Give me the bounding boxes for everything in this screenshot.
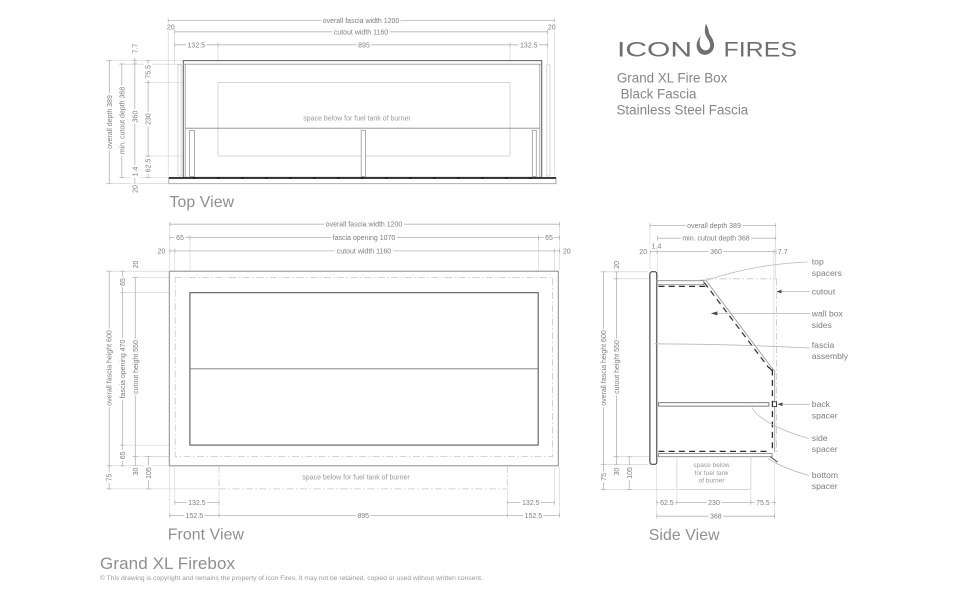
svg-text:75: 75 [107, 474, 114, 482]
svg-text:spacer: spacer [812, 410, 838, 420]
svg-text:20: 20 [639, 249, 647, 256]
svg-text:20: 20 [548, 25, 556, 32]
svg-text:space below for fuel tank of b: space below for fuel tank of burner [303, 116, 411, 123]
svg-text:overall fascia width 1200: overall fascia width 1200 [323, 18, 400, 25]
svg-text:cutout height 550: cutout height 550 [133, 340, 140, 394]
svg-text:overall depth 389: overall depth 389 [687, 223, 741, 230]
svg-text:Grand XL Firebox: Grand XL Firebox [100, 554, 236, 573]
svg-text:132.5: 132.5 [522, 500, 540, 507]
svg-text:1.4: 1.4 [132, 167, 139, 177]
svg-text:space below for fuel tank of b: space below for fuel tank of burner [302, 475, 410, 482]
svg-text:75.5: 75.5 [756, 500, 770, 507]
svg-text:360: 360 [710, 249, 722, 256]
svg-text:for fuel tank: for fuel tank [695, 470, 730, 477]
svg-text:20: 20 [158, 248, 166, 255]
svg-text:368: 368 [710, 514, 722, 521]
svg-text:Front View: Front View [168, 527, 245, 544]
svg-text:cutout: cutout [812, 287, 836, 297]
svg-text:side: side [812, 433, 828, 443]
svg-text:Grand XL Fire Box: Grand XL Fire Box [617, 71, 728, 86]
svg-text:min. cutout depth 368: min. cutout depth 368 [119, 87, 126, 154]
svg-text:20: 20 [614, 261, 621, 269]
svg-text:152.5: 152.5 [186, 513, 204, 520]
svg-text:20: 20 [167, 25, 175, 32]
svg-text:sides: sides [812, 320, 832, 330]
svg-text:1.4: 1.4 [652, 244, 662, 251]
svg-text:assembly: assembly [812, 351, 849, 361]
svg-text:fascia: fascia [812, 340, 835, 350]
svg-text:895: 895 [357, 513, 369, 520]
svg-text:ICON: ICON [617, 39, 692, 62]
svg-text:FIRES: FIRES [724, 39, 798, 62]
svg-text:105: 105 [146, 467, 153, 479]
svg-text:65: 65 [120, 278, 127, 286]
svg-text:min. cutout depth 368: min. cutout depth 368 [682, 236, 749, 243]
svg-text:Stainless Steel Fascia: Stainless Steel Fascia [617, 102, 749, 117]
svg-text:62.5: 62.5 [146, 159, 153, 173]
svg-text:30: 30 [614, 468, 621, 476]
svg-text:cutout width 1160: cutout width 1160 [334, 29, 388, 36]
svg-text:bottom: bottom [812, 470, 838, 480]
svg-text:7.7: 7.7 [132, 44, 139, 54]
svg-text:wall box: wall box [811, 309, 844, 319]
svg-text:230: 230 [708, 500, 720, 507]
svg-text:back: back [812, 399, 831, 409]
svg-text:65: 65 [545, 235, 553, 242]
svg-text:230: 230 [146, 113, 153, 125]
svg-text:spacer: spacer [812, 444, 838, 454]
svg-text:of burner: of burner [698, 478, 725, 485]
svg-text:fascia opening 470: fascia opening 470 [120, 340, 127, 399]
svg-text:overall fascia height 600: overall fascia height 600 [601, 330, 608, 406]
svg-text:© This drawing is copyright an: © This drawing is copyright and remains … [100, 574, 483, 582]
svg-text:spacer: spacer [812, 481, 838, 491]
svg-text:132.5: 132.5 [520, 42, 538, 49]
svg-text:fascia opening 1070: fascia opening 1070 [333, 235, 396, 242]
svg-text:7.7: 7.7 [778, 249, 788, 256]
svg-text:360: 360 [132, 111, 139, 123]
svg-text:overall fascia width 1200: overall fascia width 1200 [326, 222, 403, 229]
svg-text:Side View: Side View [649, 527, 720, 544]
svg-text:65: 65 [176, 235, 184, 242]
svg-text:overall fascia height 600: overall fascia height 600 [107, 330, 114, 406]
svg-text:62.5: 62.5 [660, 500, 674, 507]
svg-text:Black Fascia: Black Fascia [621, 87, 697, 102]
svg-text:75: 75 [601, 473, 608, 481]
svg-text:spacers: spacers [812, 268, 842, 278]
svg-text:overall depth 389: overall depth 389 [107, 95, 114, 149]
svg-text:152.5: 152.5 [525, 513, 543, 520]
svg-text:20: 20 [132, 185, 139, 193]
svg-text:cutout height 550: cutout height 550 [614, 340, 621, 394]
svg-text:895: 895 [358, 42, 370, 49]
svg-text:20: 20 [563, 248, 571, 255]
svg-text:105: 105 [627, 467, 634, 479]
svg-text:20: 20 [133, 261, 140, 269]
svg-text:132.5: 132.5 [188, 500, 206, 507]
svg-text:65: 65 [120, 451, 127, 459]
svg-text:Top View: Top View [170, 194, 235, 211]
svg-text:30: 30 [133, 468, 140, 476]
svg-text:132.5: 132.5 [188, 42, 206, 49]
svg-text:space below: space below [693, 462, 729, 469]
svg-text:75.5: 75.5 [146, 65, 153, 79]
svg-text:top: top [812, 257, 824, 267]
svg-text:cutout width 1160: cutout width 1160 [337, 248, 391, 255]
